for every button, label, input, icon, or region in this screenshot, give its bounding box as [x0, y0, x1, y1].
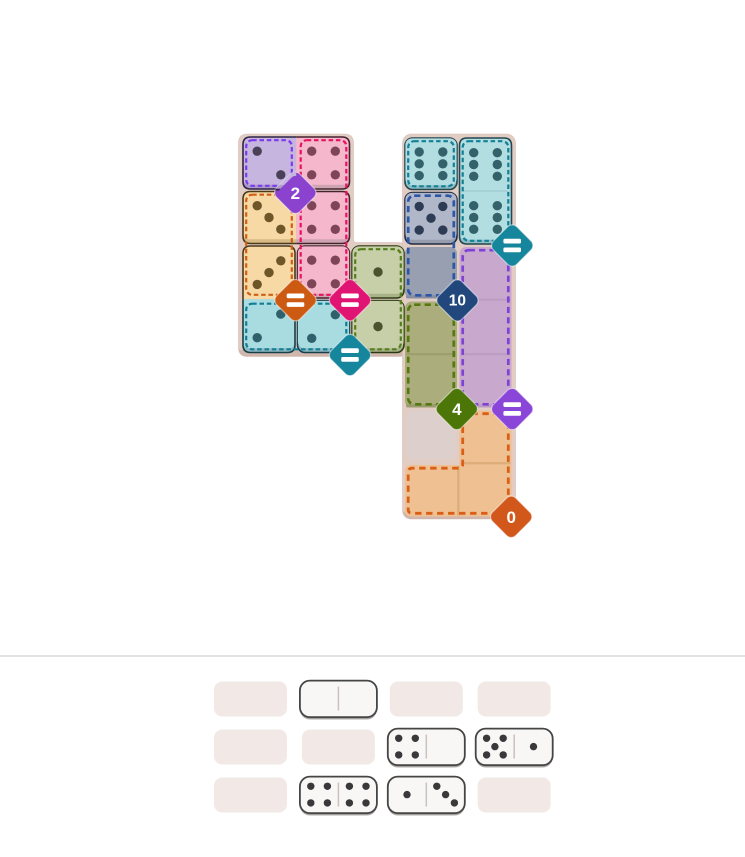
svg-text:4: 4 [452, 400, 462, 419]
svg-text:0: 0 [506, 508, 515, 527]
svg-text:2: 2 [291, 184, 300, 203]
svg-text:10: 10 [449, 292, 466, 309]
